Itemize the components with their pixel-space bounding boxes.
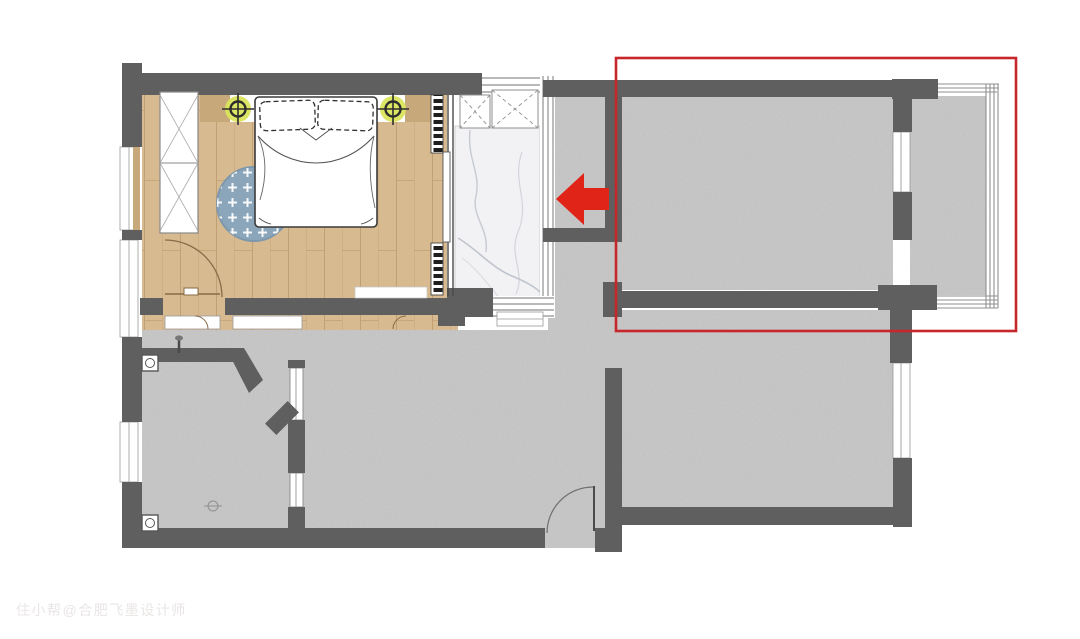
window-left-top bbox=[120, 147, 140, 230]
wall-mid-right bbox=[622, 291, 878, 308]
window-bottom-right-room bbox=[893, 363, 910, 458]
window-left-middle bbox=[120, 240, 138, 337]
floor-plan-svg bbox=[0, 0, 1080, 639]
floor-drain-icon bbox=[142, 515, 158, 531]
nightstand-right bbox=[405, 95, 435, 122]
balcony-cabinets bbox=[460, 90, 538, 128]
balcony-marble-floor bbox=[455, 126, 540, 297]
wall-bottom-divider bbox=[605, 368, 622, 550]
wall-bottom-right-room-bottom bbox=[620, 507, 912, 525]
window-left-bottom bbox=[120, 422, 138, 482]
right-balcony-floor bbox=[910, 96, 986, 295]
floor-plan-canvas: 住小帮@合肥飞墨设计师 bbox=[0, 0, 1080, 639]
watermark: 住小帮@合肥飞墨设计师 bbox=[16, 600, 187, 620]
room-bottom-right-floor bbox=[622, 310, 893, 507]
pillow-left bbox=[260, 100, 316, 131]
wardrobe bbox=[160, 92, 198, 233]
window-top-right-room bbox=[893, 132, 910, 192]
pillow-right bbox=[317, 100, 373, 131]
bed bbox=[255, 97, 377, 227]
room-top-right-floor bbox=[622, 97, 893, 290]
wall-top-right bbox=[543, 80, 892, 97]
bench-mat bbox=[355, 287, 427, 298]
wall-bedroom-bottom bbox=[225, 298, 447, 315]
wall-bottom bbox=[122, 528, 545, 548]
wall-small-room-right bbox=[605, 95, 622, 235]
wall-small-room-bottom bbox=[543, 228, 622, 242]
floor-drain-icon bbox=[142, 355, 158, 371]
